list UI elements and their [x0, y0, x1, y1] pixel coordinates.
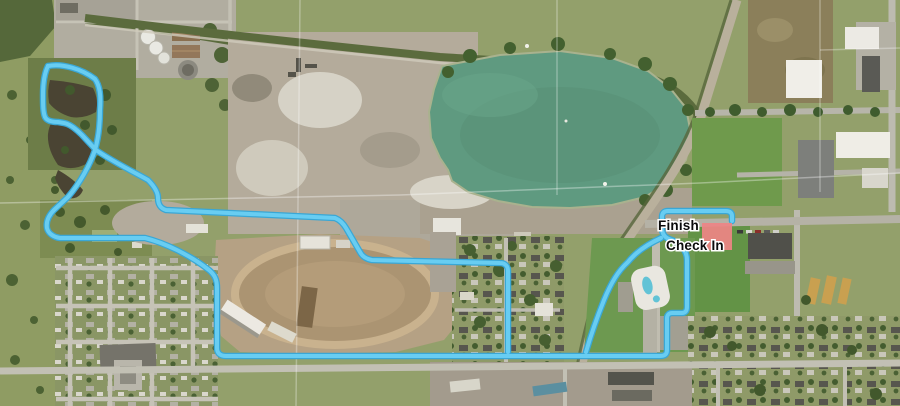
map-image: Finish Check In [0, 0, 900, 406]
fairgrounds-racetrack [213, 234, 466, 354]
aquatic-center [584, 238, 695, 354]
check-in-label: Check In [666, 238, 724, 253]
finish-label: Finish [658, 218, 699, 233]
race-course-aerial-map: Finish Check In [0, 0, 900, 406]
